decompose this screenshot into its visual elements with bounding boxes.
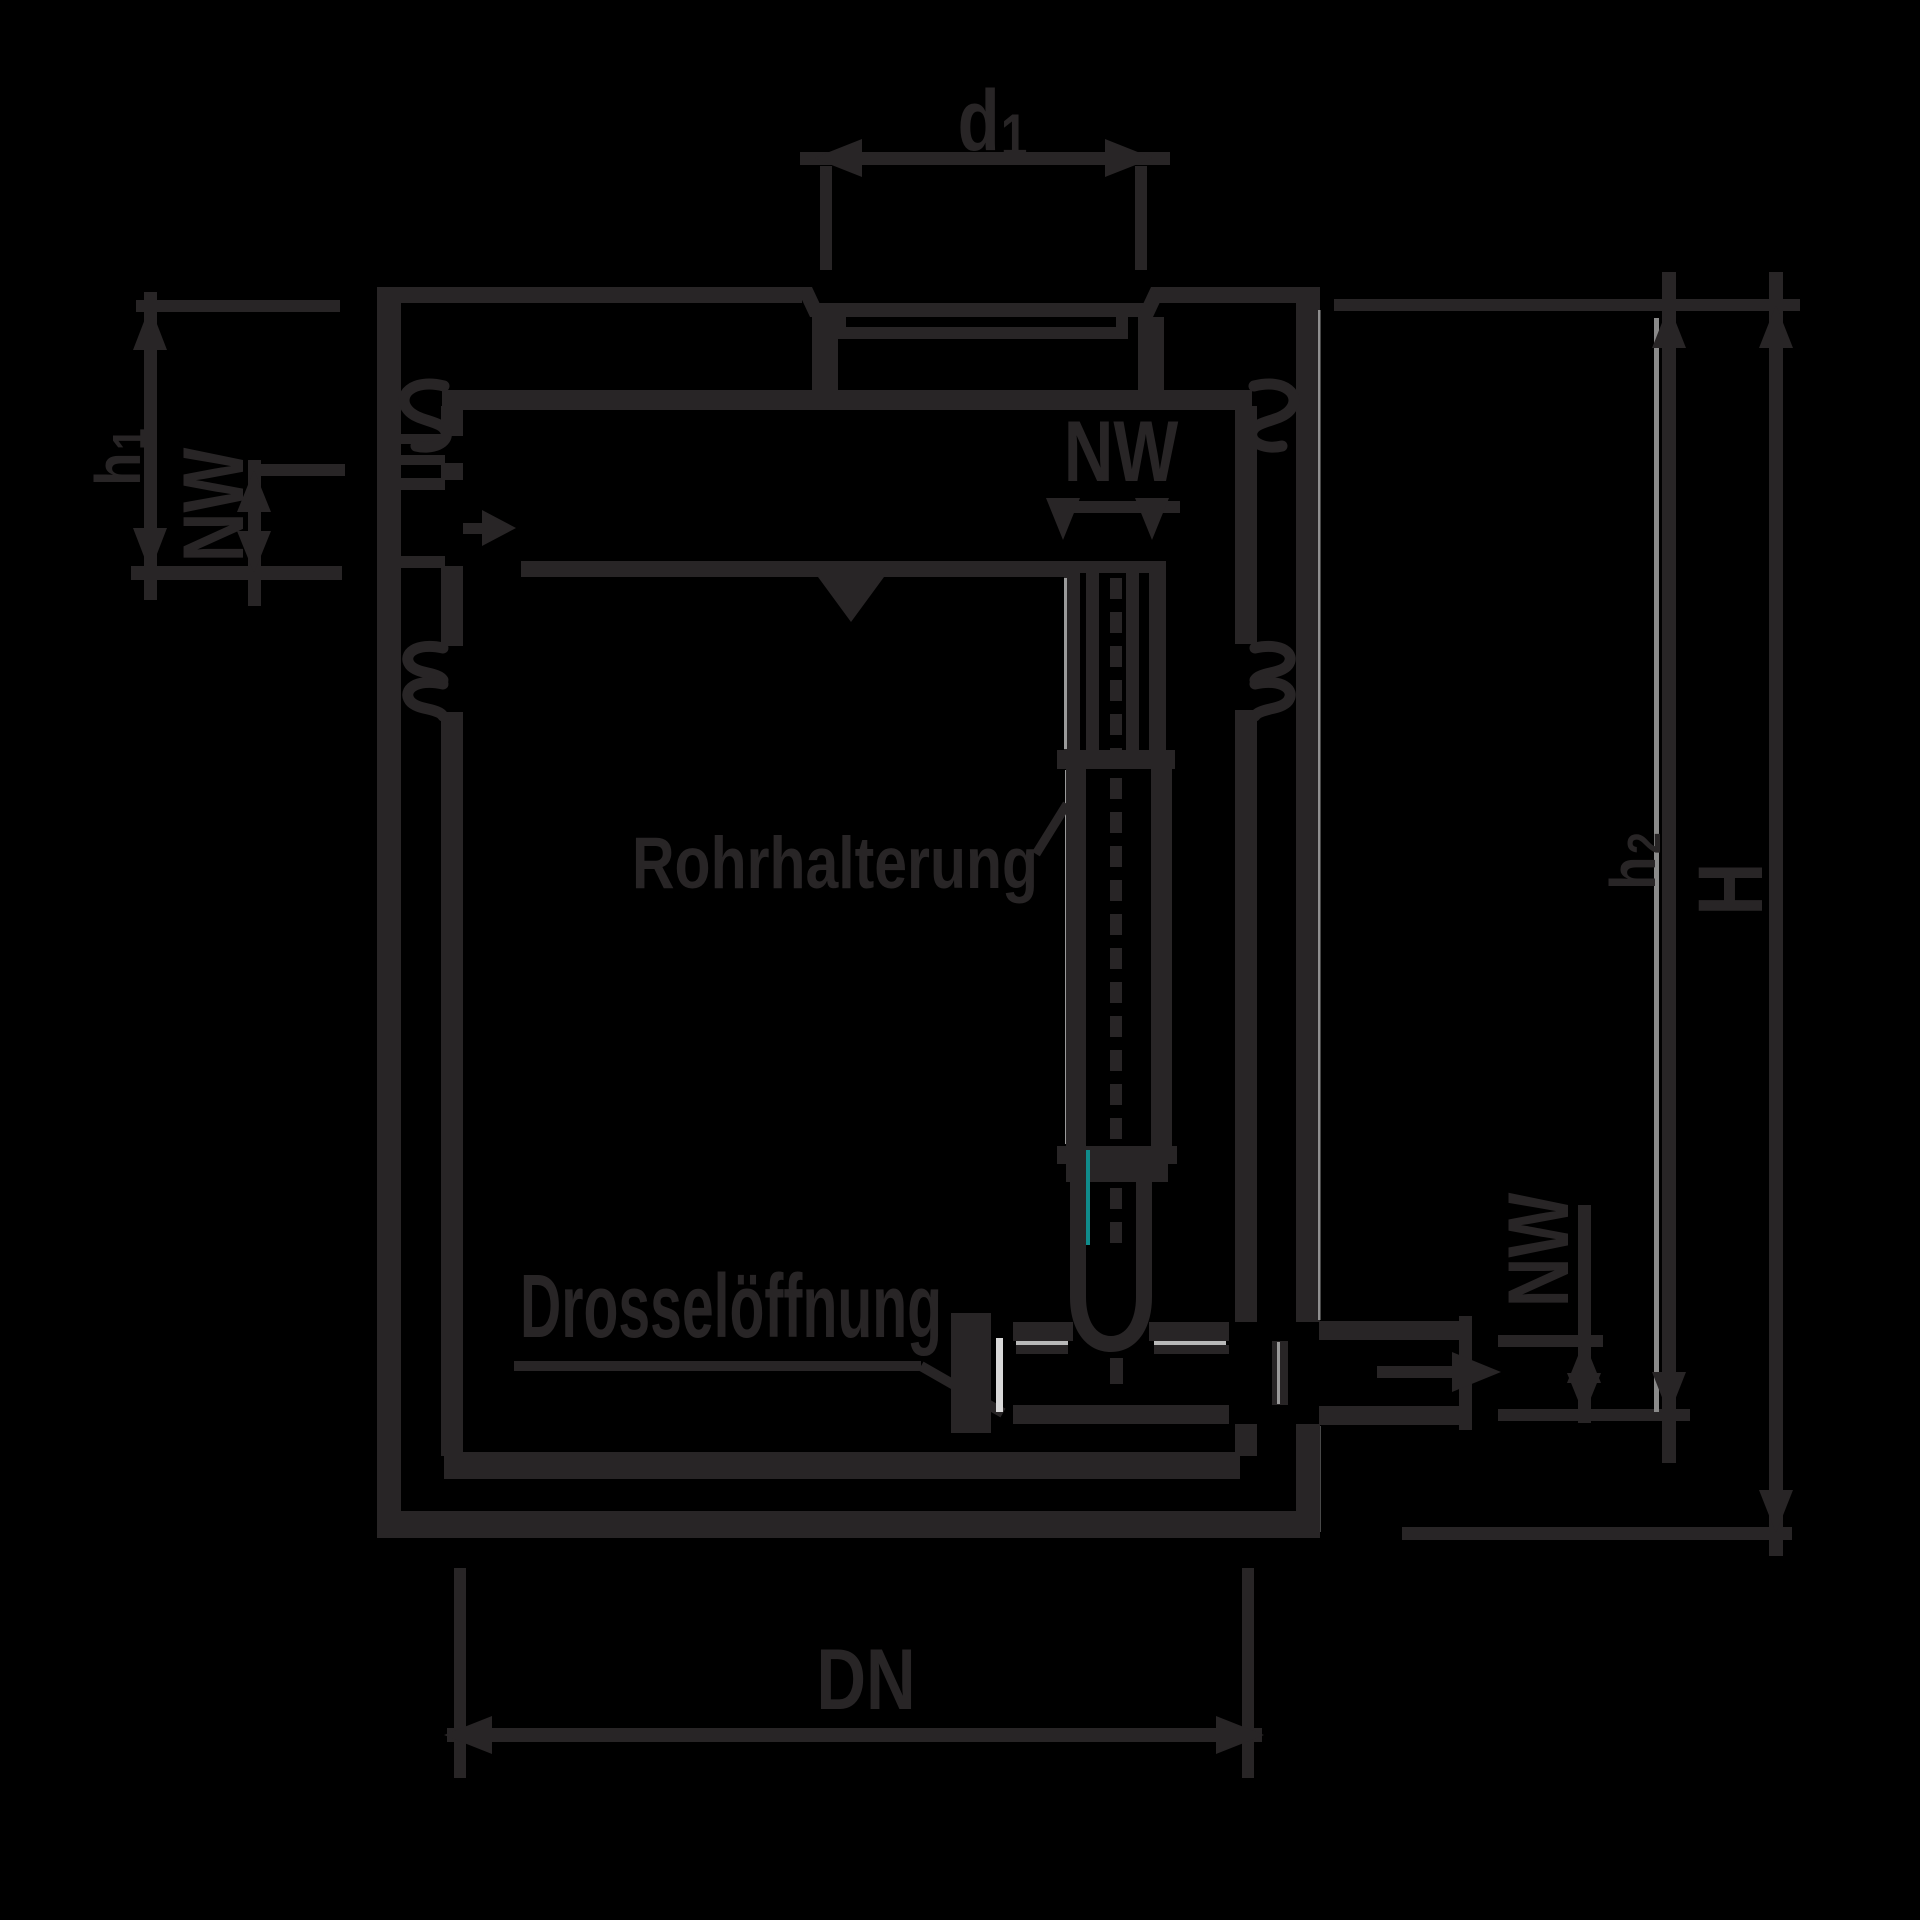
svg-text:Rohrhalterung: Rohrhalterung (632, 823, 1038, 904)
svg-text:2: 2 (1619, 832, 1671, 854)
svg-text:NW: NW (1491, 1192, 1587, 1307)
svg-text:DN: DN (816, 1632, 915, 1728)
svg-text:H: H (1679, 862, 1782, 915)
svg-text:NW: NW (1064, 404, 1179, 500)
svg-text:h: h (1597, 856, 1669, 889)
svg-text:h: h (82, 452, 154, 485)
svg-text:Drosselöffnung: Drosselöffnung (520, 1257, 942, 1357)
